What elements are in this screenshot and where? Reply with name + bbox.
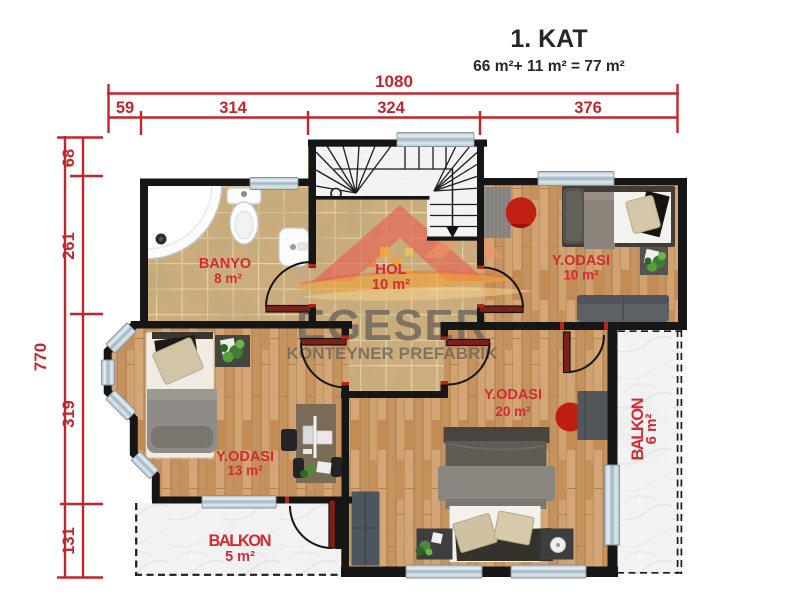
svg-text:BANYO: BANYO [199, 256, 251, 272]
svg-text:6 m²: 6 m² [643, 414, 660, 445]
svg-text:68: 68 [60, 149, 78, 167]
svg-text:324: 324 [377, 99, 405, 117]
svg-text:KONTEYNER PREFABRİK: KONTEYNER PREFABRİK [287, 344, 499, 363]
svg-text:BALKON: BALKON [209, 532, 272, 550]
svg-text:10 m²: 10 m² [563, 268, 599, 283]
svg-text:131: 131 [60, 527, 78, 555]
svg-text:319: 319 [60, 400, 78, 428]
svg-text:10 m²: 10 m² [372, 277, 410, 293]
svg-text:1080: 1080 [375, 72, 413, 91]
svg-text:8 m²: 8 m² [214, 271, 242, 286]
svg-text:261: 261 [60, 232, 78, 260]
svg-text:20 m²: 20 m² [495, 404, 531, 419]
svg-text:HOL: HOL [375, 261, 407, 278]
svg-text:66 m²+ 11 m² = 77 m²: 66 m²+ 11 m² = 77 m² [473, 58, 625, 75]
svg-text:1. KAT: 1. KAT [510, 25, 587, 53]
svg-text:770: 770 [31, 343, 50, 371]
svg-text:376: 376 [574, 99, 602, 117]
svg-text:5 m²: 5 m² [225, 549, 255, 565]
svg-text:314: 314 [219, 99, 247, 117]
svg-text:13 m²: 13 m² [227, 463, 263, 478]
svg-text:Y.ODASI: Y.ODASI [484, 387, 542, 403]
svg-text:59: 59 [116, 99, 134, 117]
